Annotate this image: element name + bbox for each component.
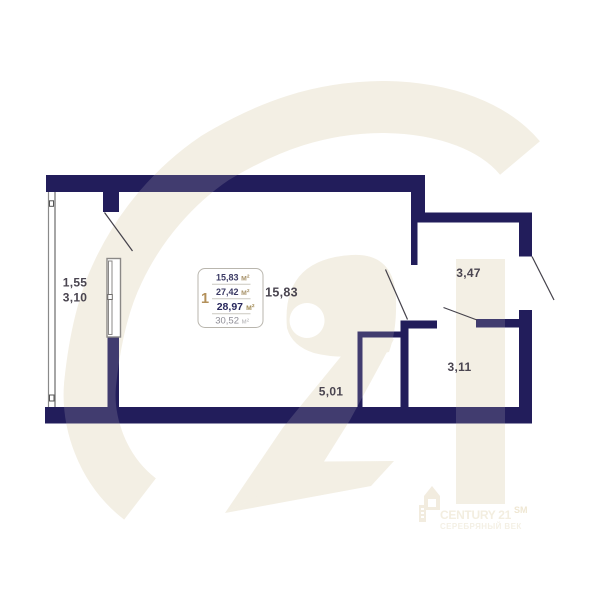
svg-text:1: 1 xyxy=(201,291,209,307)
svg-text:CENTURY 21: CENTURY 21 xyxy=(440,508,512,522)
svg-text:м²: м² xyxy=(246,303,255,312)
svg-text:5,01: 5,01 xyxy=(319,385,344,399)
svg-text:1,55: 1,55 xyxy=(63,276,88,290)
svg-text:28,97: 28,97 xyxy=(217,301,243,313)
svg-text:3,11: 3,11 xyxy=(448,360,472,374)
svg-text:СЕРЕБРЯНЫЙ ВЕК: СЕРЕБРЯНЫЙ ВЕК xyxy=(440,522,522,531)
svg-text:3,47: 3,47 xyxy=(456,266,481,280)
svg-text:м²: м² xyxy=(241,288,250,297)
svg-text:м²: м² xyxy=(242,317,250,326)
svg-text:15,83: 15,83 xyxy=(216,273,239,283)
svg-text:27,42: 27,42 xyxy=(216,287,239,297)
svg-text:15,83: 15,83 xyxy=(265,286,298,300)
svg-text:3,10: 3,10 xyxy=(63,291,88,305)
svg-text:30,52: 30,52 xyxy=(215,316,239,327)
svg-text:SM: SM xyxy=(514,505,528,515)
svg-text:м²: м² xyxy=(241,274,250,283)
